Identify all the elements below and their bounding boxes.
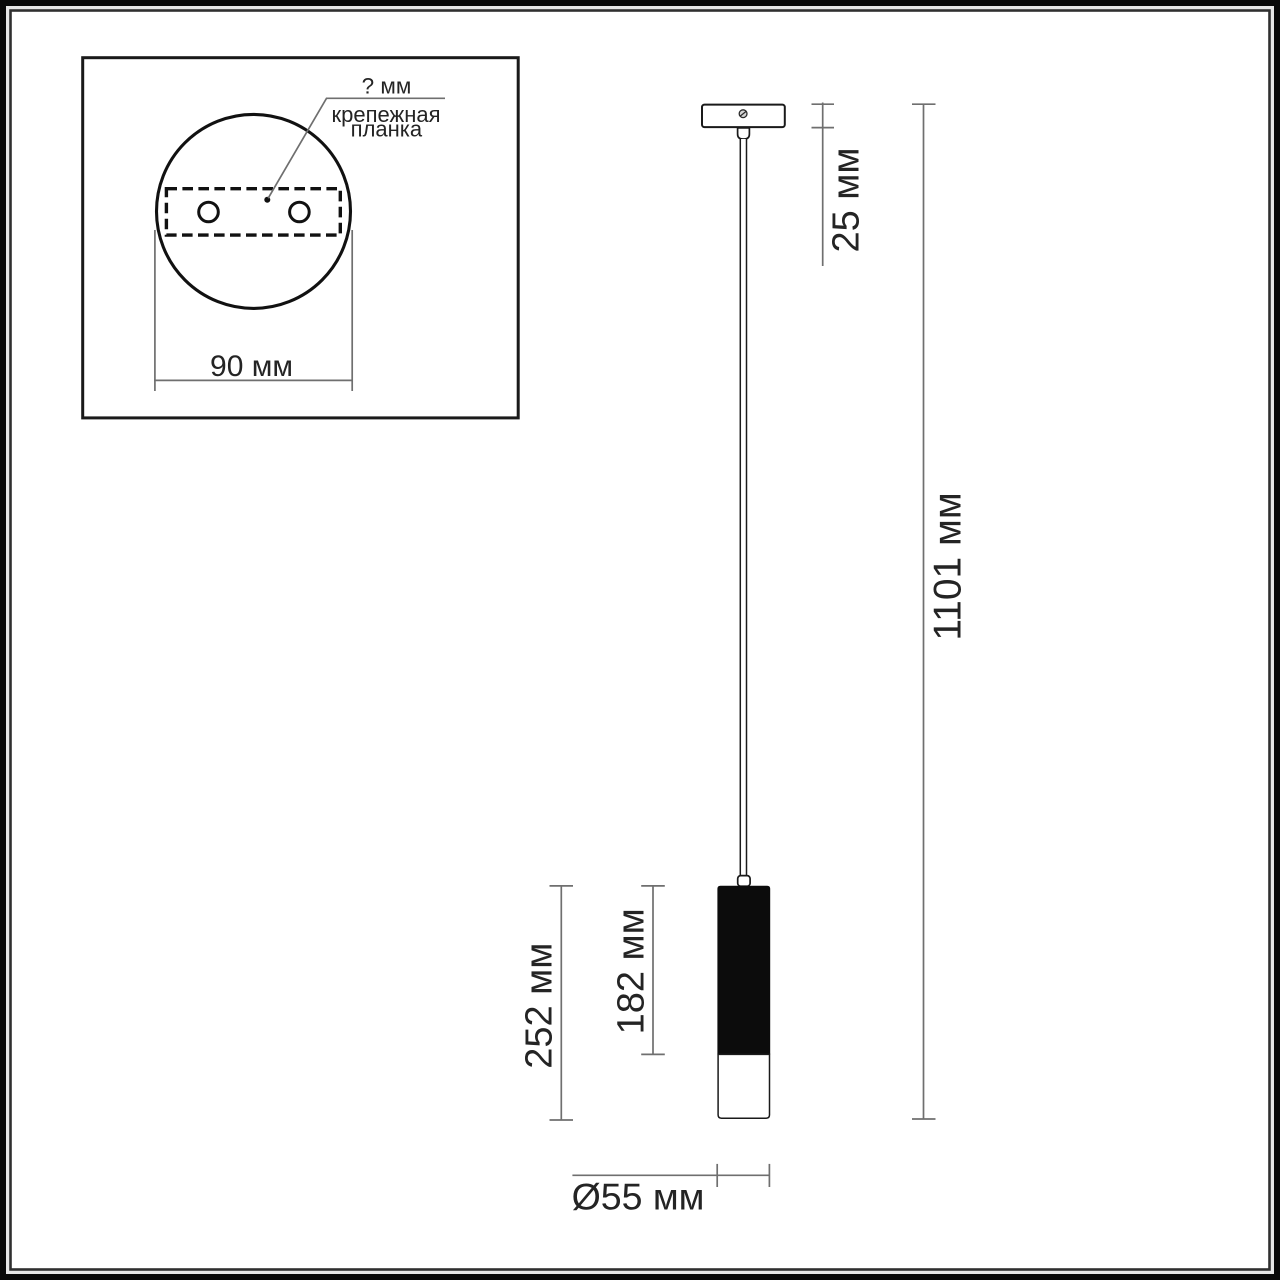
svg-text:25 мм: 25 мм (826, 147, 868, 252)
svg-text:252 мм: 252 мм (519, 943, 561, 1069)
svg-text:1101 мм: 1101 мм (927, 492, 970, 640)
svg-text:182 мм: 182 мм (611, 908, 653, 1034)
svg-text:? мм: ? мм (362, 74, 412, 99)
svg-text:планка: планка (351, 116, 423, 141)
svg-text:90 мм: 90 мм (210, 350, 293, 383)
svg-text:Ø55 мм: Ø55 мм (572, 1176, 705, 1218)
